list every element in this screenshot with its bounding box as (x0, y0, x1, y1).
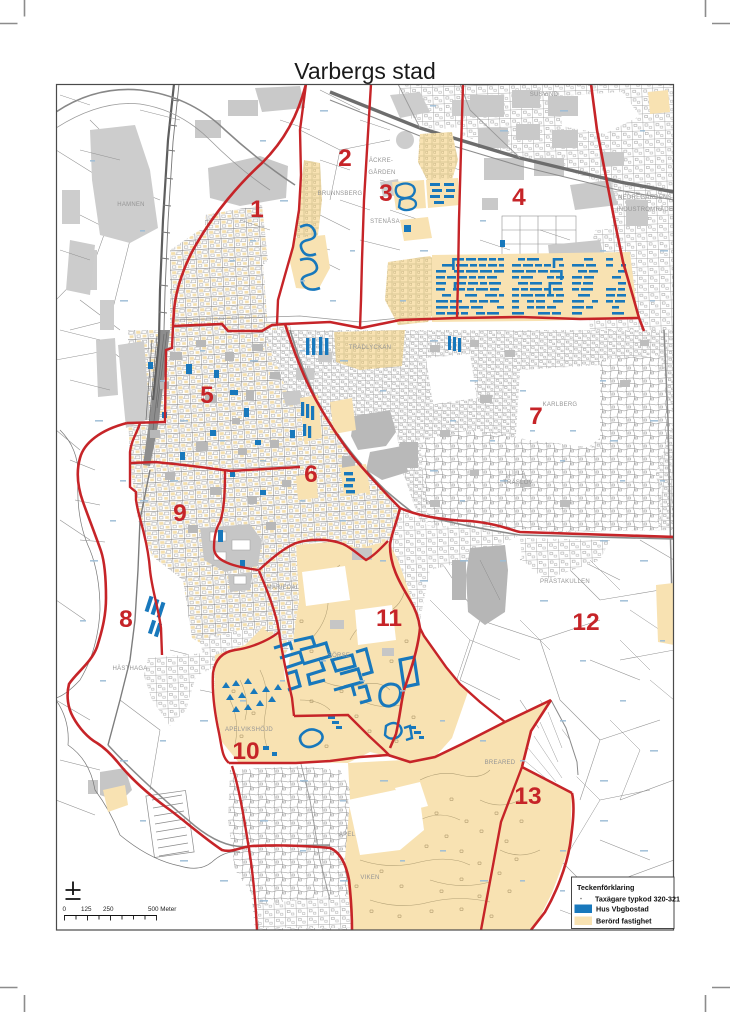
svg-text:0: 0 (63, 906, 67, 913)
svg-text:BRUNNSBERG: BRUNNSBERG (318, 191, 363, 197)
svg-text:13: 13 (514, 783, 541, 810)
svg-text:Taxägare typkod 320-321: Taxägare typkod 320-321 (595, 895, 680, 904)
svg-text:HÄSTHAGA: HÄSTHAGA (112, 665, 147, 672)
svg-text:TRÄDLYCKAN: TRÄDLYCKAN (349, 344, 391, 351)
svg-text:ÄCKRE-: ÄCKRE- (369, 157, 393, 164)
svg-text:SUSVIND: SUSVIND (530, 92, 559, 98)
svg-text:12: 12 (572, 609, 599, 636)
svg-text:11: 11 (376, 605, 402, 632)
svg-text:2: 2 (338, 145, 352, 172)
svg-text:INDUSTROMRÅDE: INDUSTROMRÅDE (617, 206, 673, 213)
svg-text:LILLA: LILLA (509, 471, 526, 477)
svg-text:APEL: APEL (339, 832, 356, 838)
svg-text:Hus Vbgbostad: Hus Vbgbostad (596, 905, 649, 914)
svg-text:VIKEN: VIKEN (360, 875, 379, 881)
svg-text:NEDREGÅRDENS: NEDREGÅRDENS (618, 194, 672, 201)
svg-text:1: 1 (250, 196, 264, 223)
svg-text:3: 3 (379, 180, 393, 207)
svg-text:GÅRDEN: GÅRDEN (368, 169, 395, 176)
svg-text:Varbergs stad: Varbergs stad (294, 58, 435, 84)
svg-text:4: 4 (512, 184, 526, 211)
svg-text:500 Meter: 500 Meter (148, 906, 176, 913)
svg-text:Teckenförklaring: Teckenförklaring (577, 883, 634, 892)
svg-text:MARIEDAL: MARIEDAL (267, 585, 300, 591)
svg-text:PRÄSTAKULLEN: PRÄSTAKULLEN (540, 578, 590, 585)
svg-text:BREARED: BREARED (485, 760, 516, 766)
svg-text:5: 5 (200, 382, 214, 409)
svg-text:Berörd fastighet: Berörd fastighet (596, 917, 652, 926)
svg-text:APELVIKSHÖJD: APELVIKSHÖJD (225, 726, 273, 733)
svg-text:9: 9 (173, 500, 187, 527)
svg-text:TRÄSLÖV: TRÄSLÖV (503, 479, 533, 486)
svg-text:6: 6 (304, 461, 318, 488)
svg-text:125: 125 (81, 906, 92, 913)
svg-text:KARLBERG: KARLBERG (543, 402, 578, 408)
svg-text:8: 8 (119, 606, 133, 633)
svg-text:HAMNEN: HAMNEN (117, 202, 145, 208)
svg-text:10: 10 (232, 738, 259, 765)
svg-text:250: 250 (103, 906, 114, 913)
svg-text:7: 7 (529, 403, 543, 430)
svg-text:SÖRSE: SÖRSE (328, 652, 350, 659)
svg-text:STENÅSA: STENÅSA (370, 218, 400, 225)
